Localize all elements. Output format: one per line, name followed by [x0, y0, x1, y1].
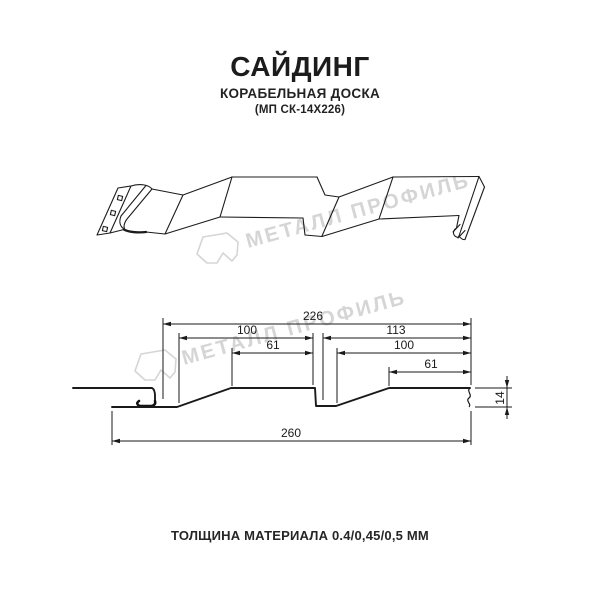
dim-100-left-label: 100: [237, 323, 257, 337]
drawing-canvas: МЕТАЛЛ ПРОФИЛЬ МЕТАЛЛ ПРОФИЛЬ: [0, 0, 600, 600]
dimension-61-right: 61: [389, 357, 471, 374]
dim-61-left-label: 61: [266, 338, 280, 352]
dim-14-label: 14: [493, 391, 507, 405]
thickness-note: ТОЛЩИНА МАТЕРИАЛА 0.4/0,45/0,5 ММ: [0, 528, 600, 543]
dimension-226: 226: [163, 309, 471, 326]
watermark-text: МЕТАЛЛ ПРОФИЛЬ: [243, 169, 473, 253]
dim-226-label: 226: [303, 309, 323, 323]
dimension-14: 14: [493, 376, 509, 419]
watermark-text: МЕТАЛЛ ПРОФИЛЬ: [179, 286, 409, 370]
catalog-drawing-page: { "header": { "title": "САЙДИНГ", "subti…: [0, 0, 600, 600]
dim-113-label: 113: [386, 323, 405, 337]
extension-lines: [112, 318, 512, 445]
brand-logo-icon: [197, 233, 238, 263]
watermark-3d: МЕТАЛЛ ПРОФИЛЬ: [197, 169, 473, 263]
watermark-section: МЕТАЛЛ ПРОФИЛЬ: [135, 286, 409, 380]
profile-cross-section: [73, 388, 470, 407]
dim-61-right-label: 61: [424, 357, 438, 371]
brand-logo-icon: [135, 350, 176, 380]
dim-260-label: 260: [281, 426, 301, 440]
dimension-260: 260: [112, 426, 471, 443]
dimension-100-right: 100: [337, 338, 471, 355]
dim-100-right-label: 100: [394, 338, 414, 352]
